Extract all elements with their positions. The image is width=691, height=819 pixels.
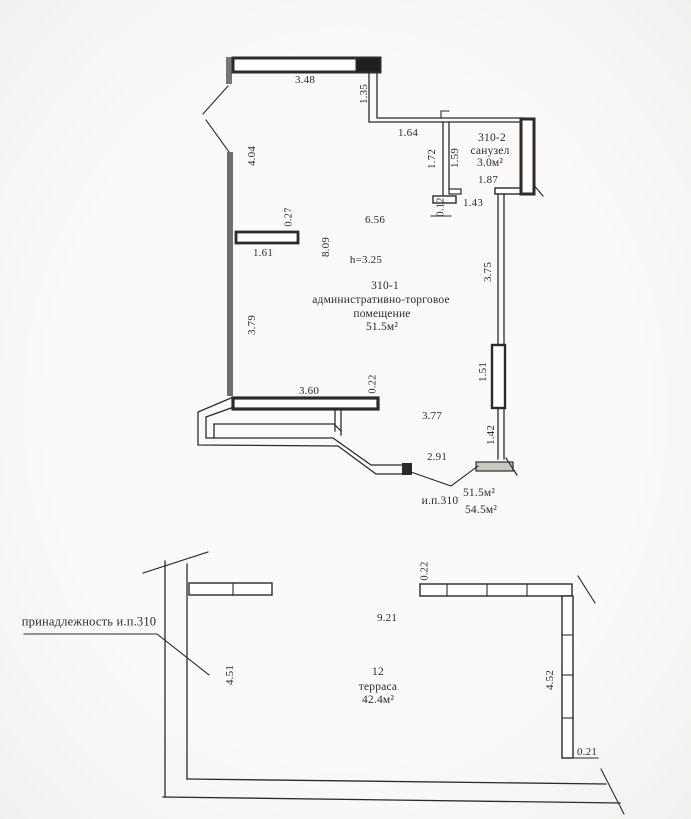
dim-1-87: 1.87 bbox=[478, 174, 498, 186]
dim-1-43: 1.43 bbox=[463, 197, 483, 209]
dim-4-51: 4.51 bbox=[224, 665, 236, 685]
terrace-area: 42.4м² bbox=[362, 694, 394, 706]
dim-3-77: 3.77 bbox=[422, 410, 442, 422]
dim-0-12: 0.12 bbox=[436, 197, 447, 216]
dim-3-60: 3.60 bbox=[299, 385, 319, 397]
terrace-name: терраса bbox=[359, 681, 397, 693]
ceiling-height-mark: h=3.25 bbox=[350, 254, 382, 266]
dim-2-91: 2.91 bbox=[427, 451, 447, 463]
ownership-note: принадлежность и.п.310 bbox=[22, 615, 157, 630]
callout-area-top: 51.5м² bbox=[463, 487, 495, 499]
dim-6-56: 6.56 bbox=[365, 214, 385, 226]
dim-1-35: 1.35 bbox=[358, 84, 370, 104]
dim-3-48: 3.48 bbox=[295, 74, 315, 86]
dim-1-42: 1.42 bbox=[485, 425, 497, 445]
dim-9-21: 9.21 bbox=[377, 612, 397, 624]
dim-3-79: 3.79 bbox=[246, 315, 258, 335]
wc-room-name: санузел bbox=[470, 145, 509, 157]
dim-1-64: 1.64 bbox=[398, 127, 418, 139]
dim-1-72: 1.72 bbox=[426, 149, 438, 169]
dim-8-09: 8.09 bbox=[320, 237, 332, 257]
upper-plan-callout-leaders bbox=[411, 216, 478, 486]
dim-1-51: 1.51 bbox=[477, 362, 489, 382]
terrace-number: 12 bbox=[372, 666, 384, 678]
wc-room-number: 310-2 bbox=[478, 132, 506, 144]
dim-1-59: 1.59 bbox=[449, 148, 461, 168]
dim-1-61: 1.61 bbox=[253, 247, 273, 259]
dim-3-75: 3.75 bbox=[482, 262, 494, 282]
callout-area-bottom: 54.5м² bbox=[465, 504, 497, 516]
main-room-name-line2: помещение bbox=[353, 308, 410, 320]
dim-0-27: 0.27 bbox=[284, 207, 295, 226]
ownership-note-leader bbox=[24, 634, 209, 675]
dim-0-21: 0.21 bbox=[577, 746, 597, 758]
dim-0-22-upper: 0.22 bbox=[368, 374, 379, 393]
wc-room-area: 3.0м² bbox=[477, 157, 503, 169]
main-room-number: 310-1 bbox=[371, 280, 399, 292]
dim-4-52: 4.52 bbox=[544, 670, 556, 690]
floor-plan-linework bbox=[0, 0, 691, 819]
main-room-area: 51.5м² bbox=[366, 321, 398, 333]
main-room-name-line1: административно-торговое bbox=[312, 294, 450, 306]
floor-plan-sheet: 3.48 1.35 1.64 1.72 1.59 310-2 санузел 3… bbox=[0, 0, 691, 819]
dim-4-04: 4.04 bbox=[246, 146, 258, 166]
callout-unit-label: и.п.310 bbox=[422, 495, 459, 507]
dim-0-22-lower: 0.22 bbox=[420, 561, 431, 580]
